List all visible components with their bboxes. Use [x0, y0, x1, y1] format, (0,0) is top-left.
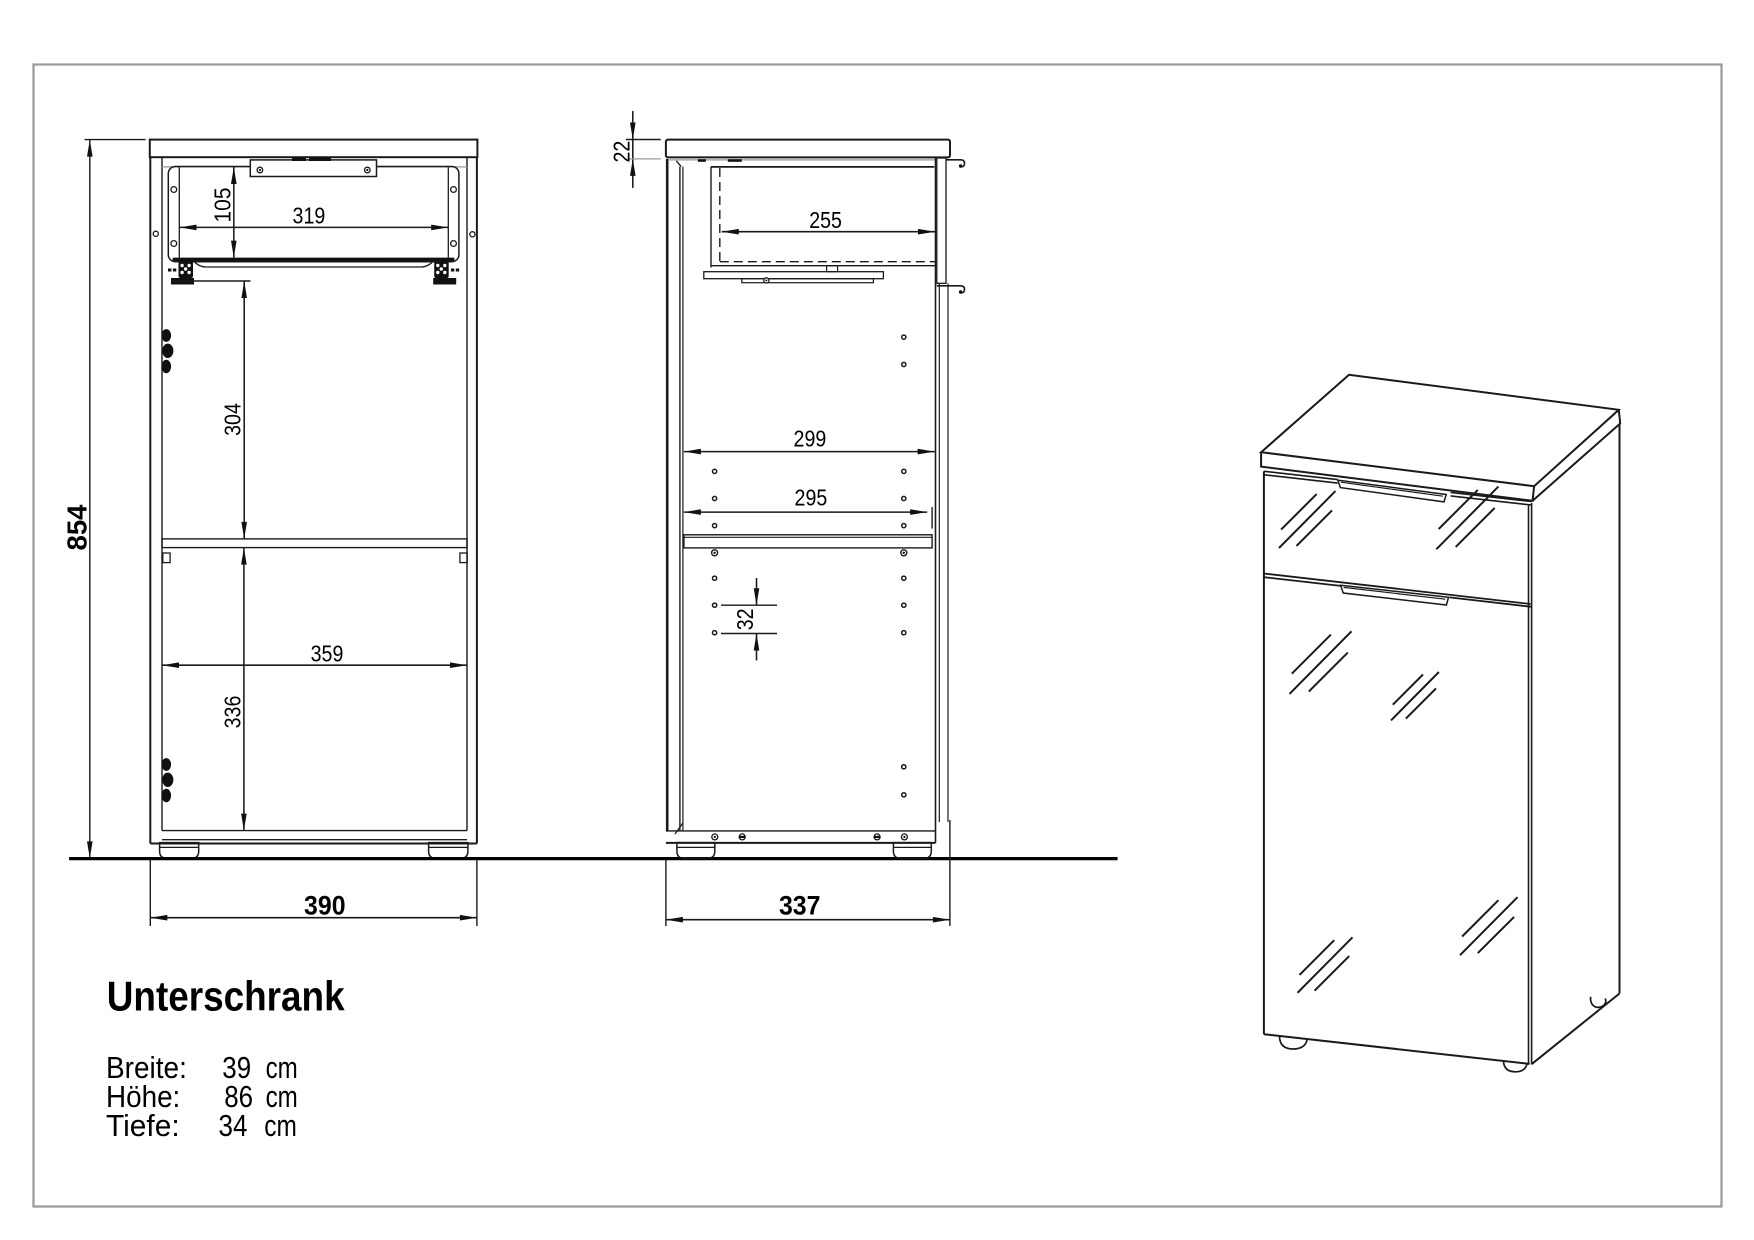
svg-text:105: 105: [209, 187, 235, 222]
svg-text:cm: cm: [264, 1108, 297, 1143]
svg-text:336: 336: [219, 696, 245, 729]
svg-text:22: 22: [608, 141, 634, 163]
svg-text:304: 304: [220, 403, 246, 436]
svg-text:34: 34: [219, 1108, 248, 1143]
svg-text:Tiefe:: Tiefe:: [106, 1108, 180, 1143]
svg-text:854: 854: [61, 504, 92, 550]
svg-text:295: 295: [795, 485, 828, 511]
svg-text:Unterschrank: Unterschrank: [107, 973, 345, 1020]
svg-text:255: 255: [809, 207, 842, 233]
svg-text:390: 390: [304, 891, 346, 921]
svg-text:359: 359: [311, 640, 344, 666]
svg-text:32: 32: [732, 609, 758, 631]
svg-text:319: 319: [293, 203, 326, 229]
svg-text:337: 337: [779, 891, 821, 921]
svg-text:299: 299: [794, 425, 827, 451]
